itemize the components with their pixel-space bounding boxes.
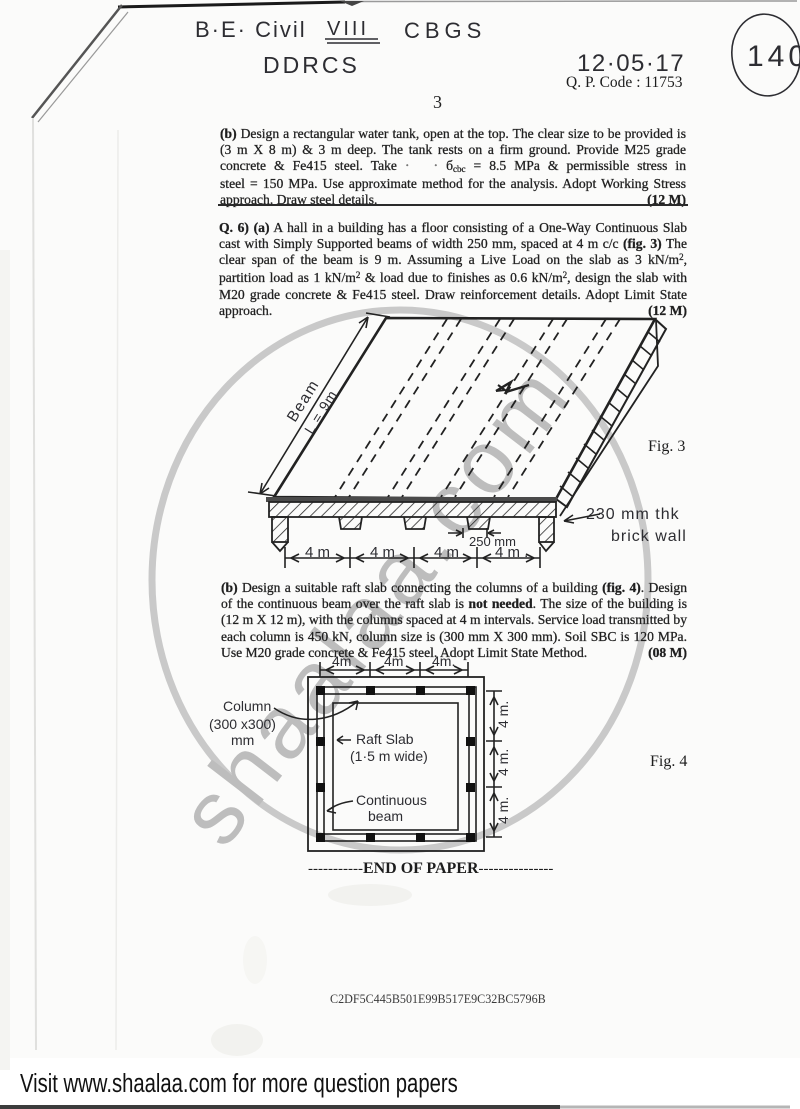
svg-text:C2DF5C445B501E99B517E9C32BC579: C2DF5C445B501E99B517E9C32BC5796B — [330, 992, 546, 1006]
svg-text:Continuous: Continuous — [356, 792, 427, 808]
svg-text:12·05·17: 12·05·17 — [577, 50, 685, 77]
svg-text:4m.: 4m. — [432, 653, 455, 669]
svg-text:VIII: VIII — [327, 18, 369, 40]
svg-text:(1·5 m wide): (1·5 m wide) — [350, 748, 428, 764]
svg-text:4 m.: 4 m. — [495, 749, 511, 776]
svg-text:CBGS: CBGS — [404, 18, 486, 43]
svg-text:Raft Slab: Raft Slab — [356, 731, 414, 747]
svg-text:4 m.: 4 m. — [495, 701, 511, 728]
svg-text:4 m: 4 m — [305, 544, 330, 561]
svg-text:B·E· Civil: B·E· Civil — [195, 17, 307, 42]
svg-text:4 m: 4 m — [434, 544, 459, 561]
svg-text:4 m: 4 m — [370, 544, 395, 561]
svg-text:brick wall: brick wall — [611, 528, 687, 545]
svg-text:4m: 4m — [384, 653, 403, 669]
svg-text:beam: beam — [368, 808, 403, 824]
svg-text:4 m .: 4 m . — [495, 544, 528, 561]
svg-text:140: 140 — [747, 40, 800, 73]
svg-text:mm: mm — [231, 732, 254, 748]
svg-text:-----------END OF PAPER-------: -----------END OF PAPER--------------- — [308, 860, 553, 877]
svg-text:Fig. 3: Fig. 3 — [648, 438, 685, 455]
svg-text:4 m.: 4 m. — [495, 797, 511, 824]
svg-text:(300 x300): (300 x300) — [209, 716, 276, 732]
svg-text:Visit www.shaalaa.com for more: Visit www.shaalaa.com for more question … — [20, 1069, 458, 1098]
svg-text:4m: 4m — [332, 653, 351, 669]
svg-text:Column: Column — [223, 698, 271, 714]
svg-text:Fig. 4: Fig. 4 — [650, 753, 687, 770]
svg-text:DDRCS: DDRCS — [263, 52, 360, 78]
